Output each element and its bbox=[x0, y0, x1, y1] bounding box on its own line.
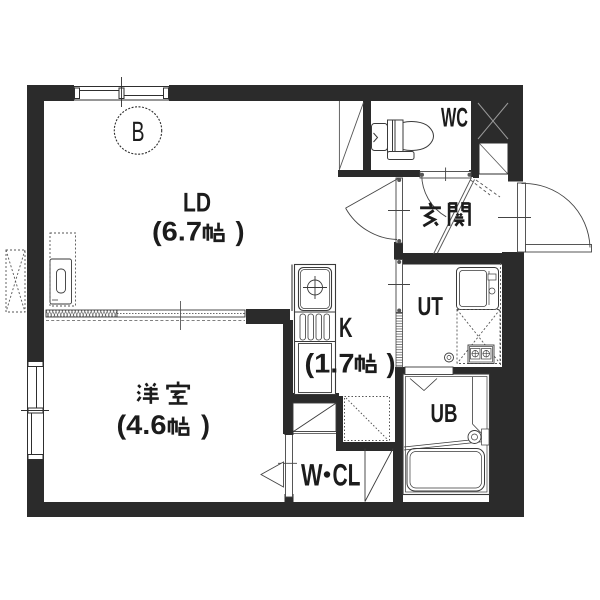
svg-text:CL: CL bbox=[333, 458, 361, 493]
svg-text:): ) bbox=[387, 349, 396, 379]
svg-text:(1.7: (1.7 bbox=[305, 349, 355, 379]
svg-text:LD: LD bbox=[183, 188, 211, 218]
svg-text:WC: WC bbox=[441, 103, 468, 133]
svg-text:): ) bbox=[236, 217, 245, 247]
svg-text:): ) bbox=[201, 410, 210, 440]
svg-text:(4.6: (4.6 bbox=[117, 410, 167, 440]
svg-text:UT: UT bbox=[418, 291, 444, 321]
svg-text:(6.7: (6.7 bbox=[152, 217, 202, 247]
svg-text:W: W bbox=[301, 458, 323, 493]
svg-text:K: K bbox=[339, 312, 353, 343]
svg-text:B: B bbox=[132, 116, 145, 147]
svg-text:UB: UB bbox=[431, 398, 458, 428]
